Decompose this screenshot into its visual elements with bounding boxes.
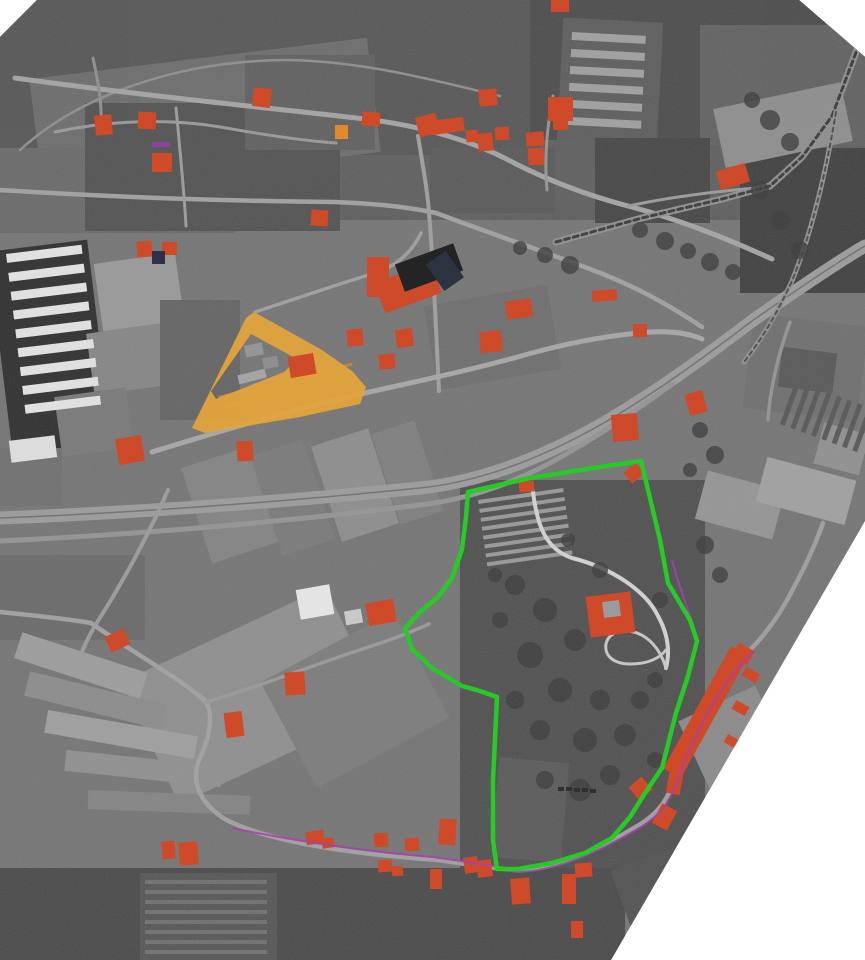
gray-building-detail (602, 600, 621, 618)
red-building (505, 298, 533, 319)
red-building (553, 117, 568, 130)
red-building (562, 874, 576, 904)
red-building (551, 0, 569, 12)
red-building (161, 841, 175, 860)
red-building (138, 112, 157, 130)
red-building (136, 240, 152, 257)
parked-car (574, 788, 580, 792)
red-building (346, 328, 363, 346)
red-building (528, 148, 545, 166)
red-building (571, 921, 583, 938)
red-building (611, 413, 639, 442)
red-building (310, 209, 328, 226)
red-building (287, 353, 316, 378)
parked-car (558, 787, 564, 791)
red-building (477, 132, 494, 151)
red-building (592, 289, 618, 302)
red-building (374, 833, 389, 848)
red-building (525, 131, 544, 147)
film-grain-overlay (0, 0, 865, 960)
red-building (152, 153, 172, 172)
red-building (495, 127, 510, 141)
red-building (365, 599, 397, 627)
red-building (478, 88, 497, 107)
red-building (252, 87, 272, 108)
parked-car (582, 788, 588, 792)
red-building (178, 841, 199, 865)
white-building (344, 609, 363, 626)
aerial-photo-figure (0, 0, 865, 960)
red-building (510, 877, 531, 904)
red-building (378, 860, 393, 873)
red-building (362, 112, 381, 127)
red-building (115, 435, 145, 465)
annotated-aerial-map (0, 0, 865, 960)
red-building (392, 866, 404, 877)
parked-car (566, 787, 572, 791)
red-building (430, 869, 442, 889)
red-building (321, 837, 334, 849)
red-building (405, 838, 420, 852)
film-grain (0, 0, 865, 960)
red-building (236, 440, 253, 461)
orange-building (335, 125, 348, 139)
white-building (296, 584, 335, 619)
red-building (575, 862, 593, 877)
red-building (224, 711, 245, 738)
red-building (476, 859, 493, 878)
parked-car (590, 789, 596, 793)
red-building (479, 330, 503, 353)
purple-building (152, 142, 170, 147)
red-building (284, 671, 306, 695)
red-building (465, 129, 478, 142)
red-building (395, 328, 414, 348)
red-building (633, 324, 647, 337)
red-building (438, 818, 457, 845)
red-building (94, 114, 113, 135)
red-building (378, 353, 395, 369)
dark-building (152, 251, 165, 264)
